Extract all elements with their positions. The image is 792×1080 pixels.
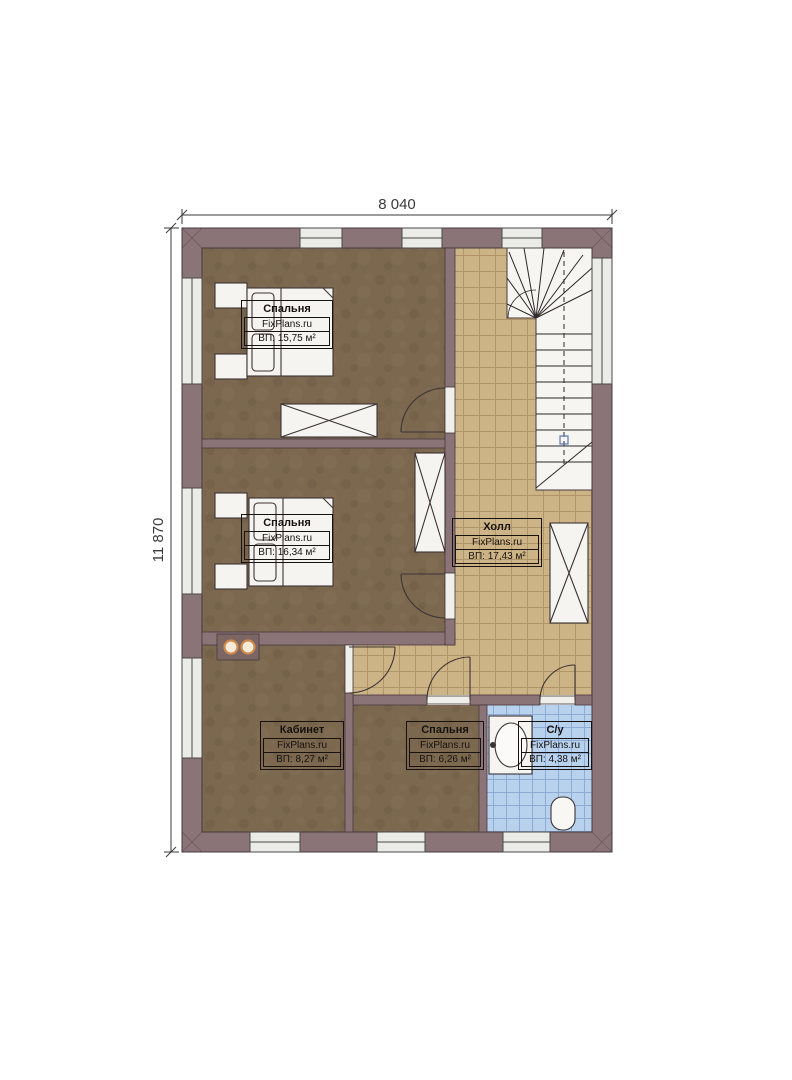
room-name: Спальня xyxy=(409,723,481,737)
flue-pipe-2 xyxy=(242,641,255,654)
window-left-2 xyxy=(182,488,202,594)
dimension-width-label: 8 040 xyxy=(378,196,416,213)
wall-corridor-bathroom-right xyxy=(575,695,592,705)
room-area: ВП: 6,26 м² xyxy=(409,752,481,767)
room-label-bedroom-1: Спальня FixPlans.ru ВП: 15,75 м² xyxy=(241,300,333,349)
room-name: Спальня xyxy=(244,516,330,530)
window-left-3 xyxy=(182,658,202,758)
window-left-1 xyxy=(182,278,202,384)
room-name: С/у xyxy=(521,723,589,737)
flue-pipe-1 xyxy=(225,641,238,654)
wall-corridor-bedroom3-left xyxy=(353,695,427,705)
room-label-hall: Холл FixPlans.ru ВП: 17,43 м² xyxy=(452,518,542,567)
room-area: ВП: 16,34 м² xyxy=(244,545,330,560)
dimension-height-label: 11 870 xyxy=(150,518,167,563)
window-top-1 xyxy=(300,228,342,248)
window-top-2 xyxy=(402,228,442,248)
room-area: ВП: 15,75 м² xyxy=(244,331,330,346)
wall-bedrooms-hall-upper xyxy=(445,248,455,388)
window-top-3 xyxy=(502,228,542,248)
room-name: Спальня xyxy=(244,302,330,316)
window-bottom-3 xyxy=(503,832,550,852)
nightstand xyxy=(215,564,247,589)
wardrobe-bedroom-2 xyxy=(415,453,445,552)
brand-watermark: FixPlans.ru xyxy=(521,738,589,753)
wall-bedroom1-bedroom2 xyxy=(202,439,455,448)
floor-plan-svg: 8 040 11 870 xyxy=(0,0,792,1080)
wall-corridor-bathroom-mid xyxy=(470,695,540,705)
toilet xyxy=(551,797,575,830)
window-bottom-2 xyxy=(377,832,425,852)
room-area: ВП: 8,27 м² xyxy=(263,752,341,767)
room-label-bedroom-2: Спальня FixPlans.ru ВП: 16,34 м² xyxy=(241,514,333,563)
room-label-office: Кабинет FixPlans.ru ВП: 8,27 м² xyxy=(260,721,344,770)
room-area: ВП: 4,38 м² xyxy=(521,752,589,767)
room-name: Кабинет xyxy=(263,723,341,737)
room-name: Холл xyxy=(455,520,539,534)
room-area: ВП: 17,43 м² xyxy=(455,549,539,564)
wardrobe-bedroom-1 xyxy=(281,404,377,437)
wall-office-bedroom3 xyxy=(345,693,353,832)
window-right-1 xyxy=(592,258,612,384)
floor-plan-canvas: 8 040 11 870 Спальня FixPlans.ru ВП: 15,… xyxy=(0,0,792,1080)
chimney-block xyxy=(217,634,259,660)
wall-bedrooms-hall-lower xyxy=(445,618,455,645)
nightstand xyxy=(215,354,247,379)
wardrobe-hall xyxy=(550,523,588,623)
window-bottom-1 xyxy=(250,832,300,852)
room-label-bedroom-3: Спальня FixPlans.ru ВП: 6,26 м² xyxy=(406,721,484,770)
faucet xyxy=(491,743,496,748)
room-label-bathroom: С/у FixPlans.ru ВП: 4,38 м² xyxy=(518,721,592,770)
